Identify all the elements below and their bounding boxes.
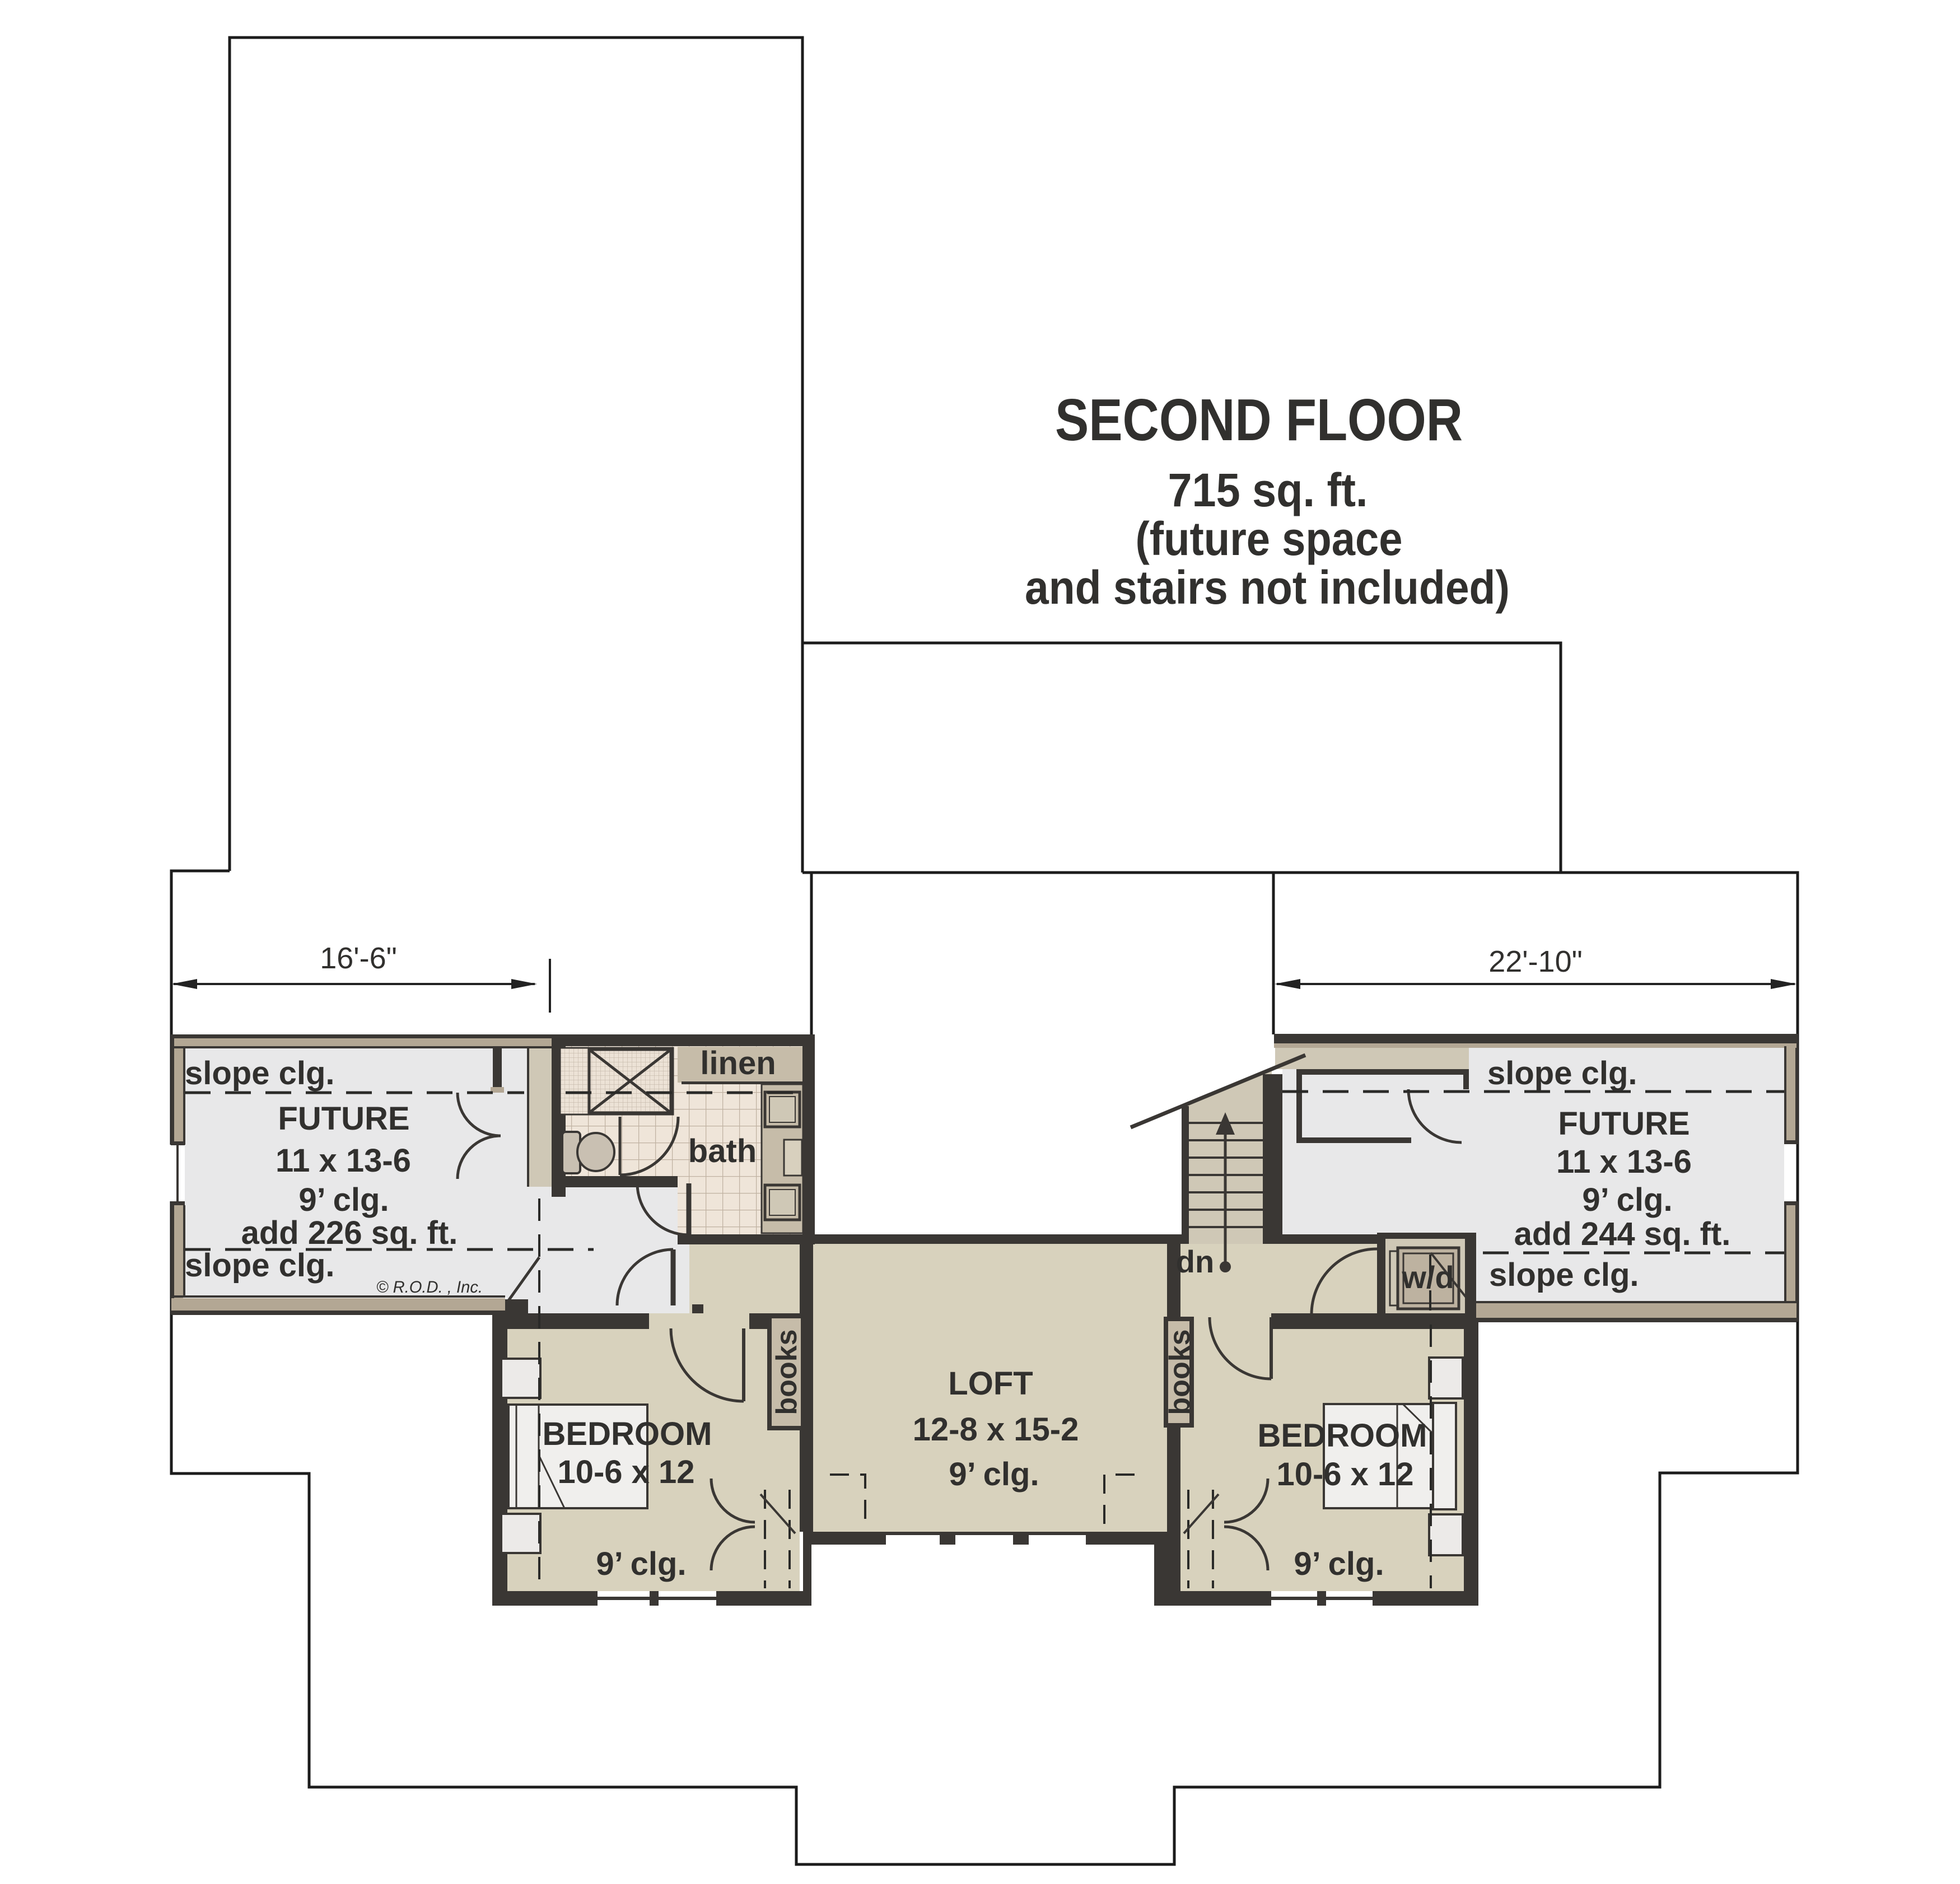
svg-text:dn: dn — [1176, 1244, 1214, 1279]
svg-text:bath: bath — [688, 1133, 757, 1169]
svg-text:linen: linen — [700, 1045, 776, 1081]
svg-text:© R.O.D. , Inc.: © R.O.D. , Inc. — [376, 1278, 483, 1297]
svg-text:10-6 x 12: 10-6 x 12 — [557, 1454, 694, 1490]
svg-text:12-8 x 15-2: 12-8 x 15-2 — [913, 1411, 1079, 1448]
svg-text:books: books — [1164, 1329, 1196, 1415]
svg-text:11 x 13-6: 11 x 13-6 — [1556, 1144, 1692, 1180]
svg-text:(future space: (future space — [1136, 512, 1403, 565]
svg-text:SECOND FLOOR: SECOND FLOOR — [1055, 387, 1463, 453]
svg-text:11 x 13-6: 11 x 13-6 — [276, 1142, 411, 1179]
svg-text:9’ clg.: 9’ clg. — [298, 1182, 389, 1218]
svg-text:BEDROOM: BEDROOM — [543, 1416, 712, 1452]
svg-text:10-6 x 12: 10-6 x 12 — [1276, 1456, 1413, 1493]
svg-text:slope clg.: slope clg. — [185, 1247, 335, 1284]
svg-text:FUTURE: FUTURE — [1558, 1106, 1690, 1142]
svg-text:9’ clg.: 9’ clg. — [949, 1456, 1039, 1493]
svg-text:BEDROOM: BEDROOM — [1258, 1417, 1427, 1454]
svg-text:FUTURE: FUTURE — [278, 1100, 409, 1137]
svg-text:9’ clg.: 9’ clg. — [596, 1546, 686, 1582]
svg-text:and stairs not included): and stairs not included) — [1025, 561, 1510, 614]
svg-text:add 244 sq. ft.: add 244 sq. ft. — [1514, 1216, 1731, 1252]
svg-text:22'-10": 22'-10" — [1488, 945, 1583, 978]
svg-text:715 sq. ft.: 715 sq. ft. — [1168, 464, 1368, 516]
svg-text:add 226 sq. ft.: add 226 sq. ft. — [241, 1215, 458, 1251]
svg-text:LOFT: LOFT — [948, 1365, 1033, 1402]
svg-text:books: books — [771, 1329, 803, 1415]
svg-text:w/d: w/d — [1401, 1260, 1454, 1295]
svg-text:9’ clg.: 9’ clg. — [1294, 1546, 1384, 1582]
svg-text:16'-6": 16'-6" — [320, 941, 397, 975]
svg-text:slope clg.: slope clg. — [185, 1055, 335, 1092]
svg-text:slope clg.: slope clg. — [1489, 1257, 1639, 1293]
svg-text:slope clg.: slope clg. — [1487, 1055, 1637, 1092]
svg-text:9’ clg.: 9’ clg. — [1582, 1182, 1672, 1218]
